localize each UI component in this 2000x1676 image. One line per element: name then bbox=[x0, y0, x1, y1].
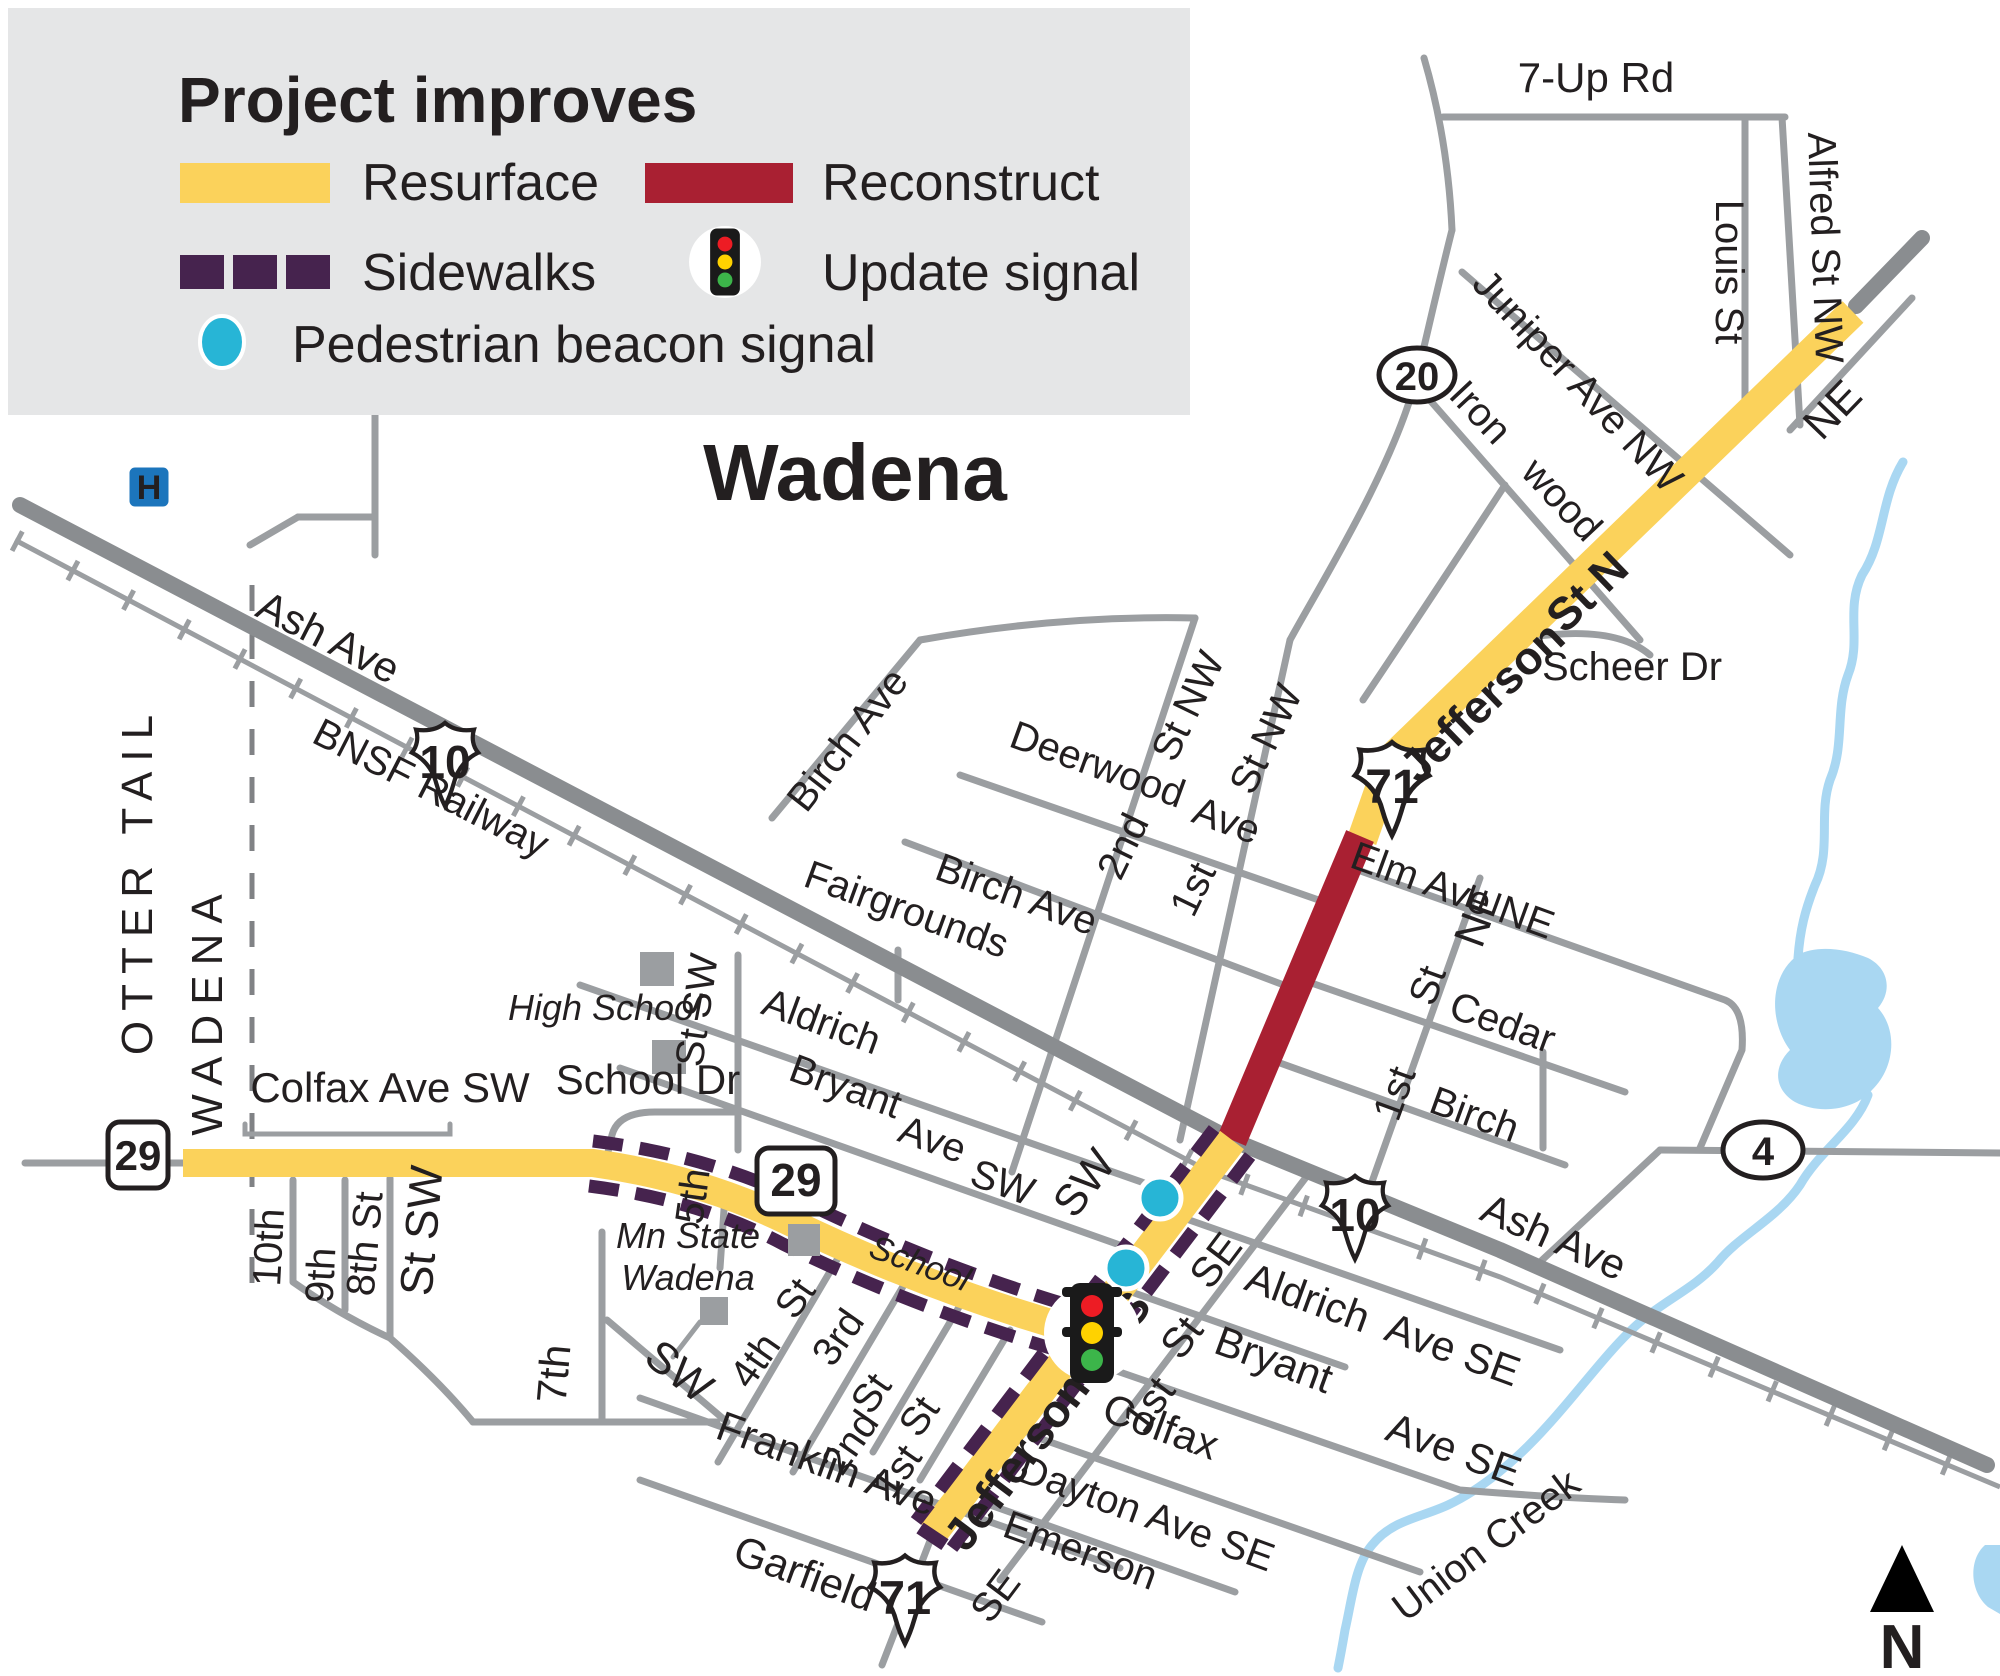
label-st-sw-big: St SW bbox=[389, 1163, 452, 1298]
legend-reconstruct-label: Reconstruct bbox=[822, 154, 1100, 212]
label-st-nw-1: St NW bbox=[1143, 645, 1233, 768]
label-1st-ne: 1st bbox=[1365, 1061, 1425, 1126]
label-9th: 9th bbox=[298, 1246, 345, 1304]
label-7up-rd: 7-Up Rd bbox=[1518, 54, 1674, 101]
resurface-swatch bbox=[180, 163, 330, 203]
road-hospital-hook bbox=[250, 517, 298, 545]
sidewalk-dash-3 bbox=[286, 255, 330, 289]
reconstruct-jefferson bbox=[1232, 836, 1360, 1140]
union-creek-water bbox=[1338, 462, 2000, 1668]
label-st-sw-5th: St SW bbox=[667, 951, 726, 1070]
road-county4 bbox=[1660, 1150, 2000, 1153]
legend-resurface-label: Resurface bbox=[362, 154, 599, 212]
label-4th: 4th bbox=[721, 1325, 789, 1396]
road-school-dr bbox=[608, 1112, 738, 1152]
mn29-west-number: 29 bbox=[115, 1132, 162, 1179]
wadena-project-map: 10 10 71 71 29 29 20 4 7-Up Rd Alfred St… bbox=[0, 0, 2000, 1676]
label-7th: 7th bbox=[528, 1343, 580, 1405]
label-3rd: 3rd bbox=[804, 1301, 873, 1374]
legend-sidewalks-label: Sidewalks bbox=[362, 244, 596, 302]
road-county20 bbox=[1290, 230, 1452, 640]
label-st-nw-2: St NW bbox=[1221, 678, 1311, 801]
label-mn-state-2: Wadena bbox=[621, 1257, 754, 1298]
us71-south-number: 71 bbox=[879, 1571, 931, 1624]
water-edge-blob bbox=[1973, 1545, 2000, 1614]
pond bbox=[1775, 949, 1891, 1109]
label-8th-st: 8th St bbox=[339, 1190, 392, 1298]
label-birch-ne: Birch bbox=[1424, 1079, 1525, 1152]
pedestrian-beacon-1 bbox=[1139, 1177, 1181, 1219]
legend-signal-yellow bbox=[718, 255, 733, 270]
map-canvas: 10 10 71 71 29 29 20 4 7-Up Rd Alfred St… bbox=[0, 0, 2000, 1676]
sidewalk-dash-1 bbox=[180, 255, 224, 289]
label-10th: 10th bbox=[245, 1207, 293, 1287]
legend-title: Project improves bbox=[178, 64, 697, 136]
city-title: Wadena bbox=[703, 428, 1007, 517]
label-colfax-ave-sw: Colfax Ave SW bbox=[250, 1064, 530, 1111]
label-school-dr: School Dr bbox=[556, 1056, 740, 1103]
colfax-bracket bbox=[245, 1124, 450, 1134]
label-bryant-sw2: SW bbox=[965, 1151, 1041, 1214]
road-topleft-curve bbox=[1424, 58, 1452, 230]
legend-update-signal-label: Update signal bbox=[822, 244, 1140, 302]
label-louis-st: Louis St bbox=[1707, 200, 1751, 345]
sidewalk-dash-2 bbox=[233, 255, 277, 289]
signal-green-light bbox=[1081, 1349, 1103, 1371]
mn-state-square bbox=[700, 1297, 728, 1325]
high-school-square-1 bbox=[640, 952, 674, 986]
legend-beacon-dot bbox=[200, 316, 244, 368]
sidewalks-swatch bbox=[180, 255, 330, 289]
label-se-2: SE bbox=[962, 1562, 1029, 1631]
road-grid-top-connector bbox=[920, 618, 1195, 640]
hospital-icon: H bbox=[128, 466, 170, 508]
creek-upper bbox=[1798, 462, 1903, 958]
label-mn-state-1: Mn State bbox=[616, 1215, 760, 1256]
legend-signal-icon bbox=[689, 226, 761, 298]
legend-signal-green bbox=[718, 273, 733, 288]
label-jefferson-n: Jefferson bbox=[1389, 611, 1574, 792]
label-2nd-nw: 2nd bbox=[1089, 807, 1158, 886]
north-label: N bbox=[1880, 1613, 1925, 1676]
legend-signal-red bbox=[718, 237, 733, 252]
label-juniper-ave-nw: Juniper Ave NW bbox=[1464, 262, 1691, 501]
legend-beacon-label: Pedestrian beacon signal bbox=[292, 316, 876, 374]
label-scheer-dr: Scheer Dr bbox=[1542, 645, 1722, 689]
label-aldrich-se: Aldrich bbox=[1240, 1253, 1377, 1341]
hospital-h: H bbox=[137, 469, 162, 507]
label-alfred-st-nw: Alfred St NW bbox=[1799, 131, 1851, 364]
label-colfax-ave-se: Ave SE bbox=[1380, 1403, 1527, 1495]
county-wadena: WADENA bbox=[183, 884, 232, 1136]
label-bryant-se: Bryant bbox=[1209, 1317, 1339, 1403]
signal-red-light bbox=[1081, 1295, 1103, 1317]
reconstruct-swatch bbox=[645, 163, 793, 203]
county-otter-tail: OTTER TAIL bbox=[113, 705, 162, 1055]
label-birch-ave-west: Birch Ave bbox=[779, 660, 917, 820]
cr4-number: 4 bbox=[1752, 1130, 1775, 1174]
label-aldrich-ave-se: Ave SE bbox=[1379, 1303, 1526, 1395]
north-arrow: N bbox=[1870, 1545, 1934, 1676]
signal-yellow-light bbox=[1081, 1322, 1103, 1344]
label-bryant-sw: Bryant bbox=[784, 1046, 908, 1127]
mn29-mid-number: 29 bbox=[770, 1154, 821, 1206]
label-st-1st: St bbox=[890, 1388, 948, 1444]
north-arrow-triangle bbox=[1870, 1545, 1934, 1612]
us10-east-number: 10 bbox=[1329, 1189, 1380, 1241]
cr20-number: 20 bbox=[1395, 355, 1440, 399]
school-square bbox=[788, 1224, 820, 1256]
pedestrian-beacon-2 bbox=[1105, 1247, 1147, 1289]
legend: Project improves Resurface Reconstruct S… bbox=[8, 8, 1190, 415]
label-ne-corner: NE bbox=[1794, 371, 1872, 449]
label-st-4th: St bbox=[766, 1270, 824, 1326]
